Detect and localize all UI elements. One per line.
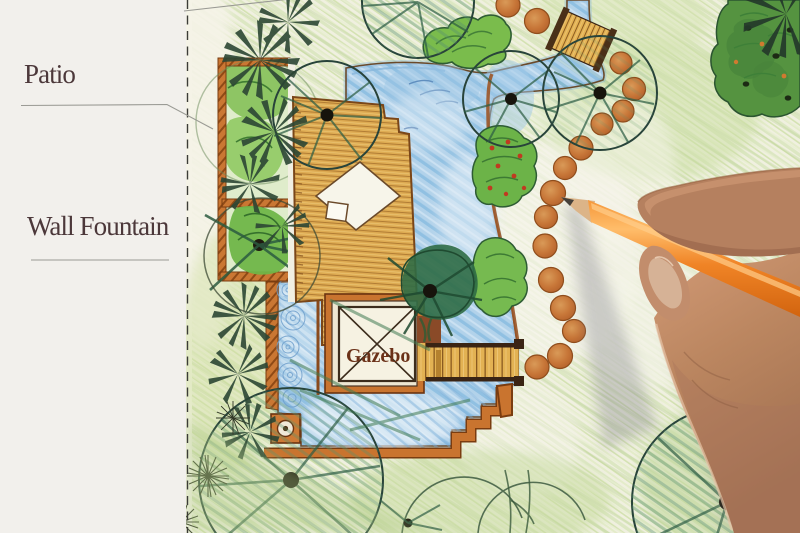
svg-text:Gazebo: Gazebo <box>346 345 410 367</box>
svg-text:Patio: Patio <box>24 59 75 89</box>
svg-text:Wall Fountain: Wall Fountain <box>27 211 170 241</box>
